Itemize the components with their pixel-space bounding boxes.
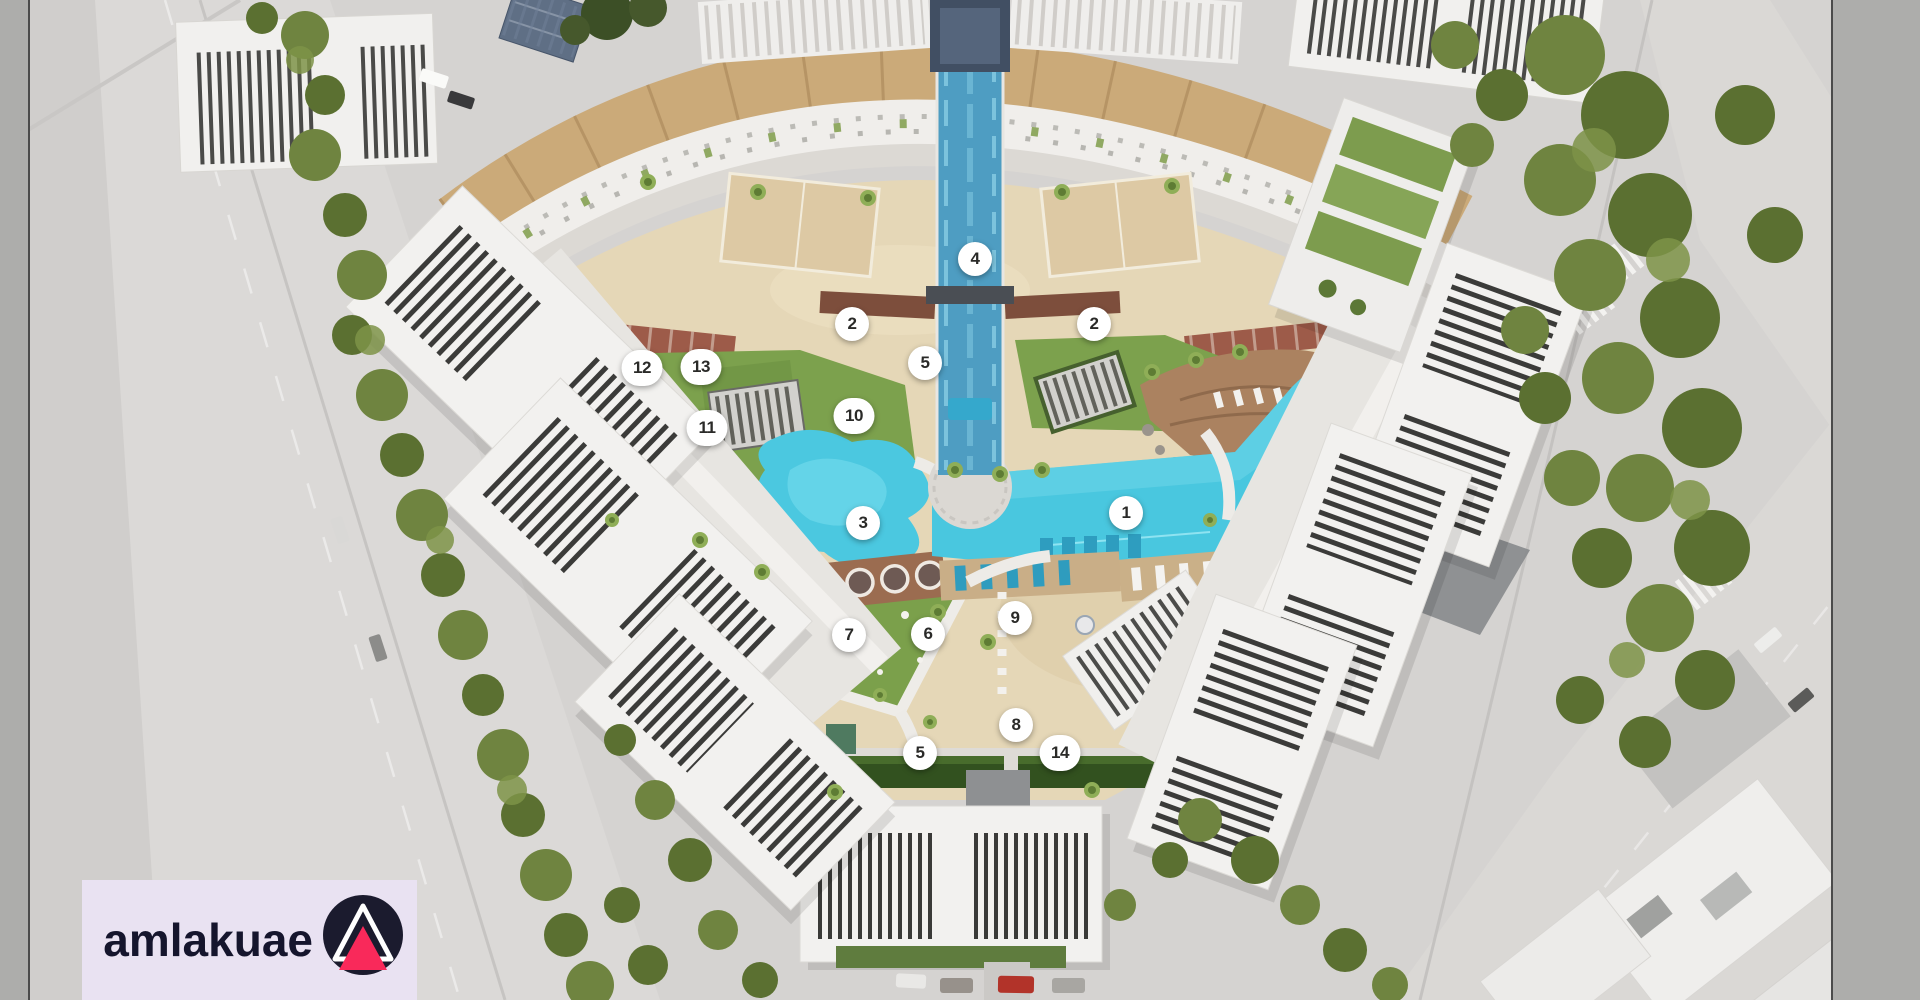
site-marker: 12 [622,350,663,386]
site-plan-render [0,0,1920,1000]
site-marker: 4 [958,242,992,276]
site-marker: 2 [835,307,869,341]
site-marker: 5 [908,346,942,380]
sport-court [721,173,879,276]
site-marker: 5 [903,736,937,770]
site-marker: 14 [1040,735,1081,771]
site-marker: 1 [1109,496,1143,530]
site-marker: 9 [998,601,1032,635]
site-marker: 2 [1077,307,1111,341]
site-marker: 3 [846,506,880,540]
logo-triangle-icon [319,893,407,987]
site-marker: 7 [832,618,866,652]
site-plan-image: 122345567891011121314 amlakuae [0,0,1920,1000]
watermark-logo: amlakuae [82,880,417,1000]
site-marker: 11 [687,410,728,446]
logo-text: amlakuae [103,917,313,963]
site-marker: 6 [911,617,945,651]
site-marker: 10 [834,398,875,434]
site-marker: 13 [681,349,722,385]
bridge [926,286,1014,304]
site-marker: 8 [999,708,1033,742]
